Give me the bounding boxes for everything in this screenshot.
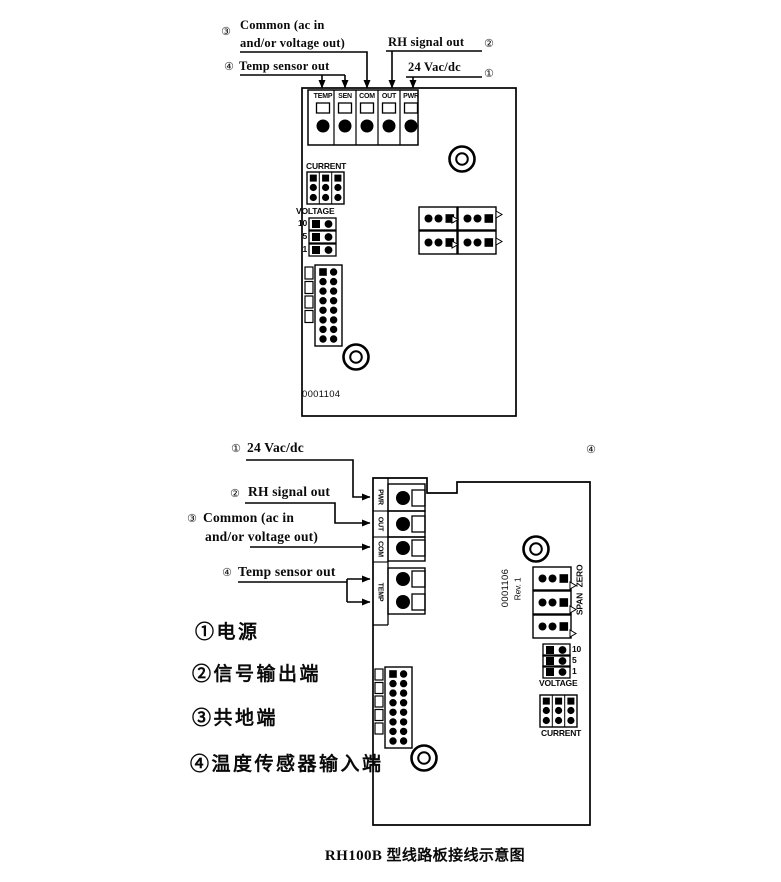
bottom-terminal-out: OUT [376, 517, 383, 531]
top-voltage-tap-1: 1 [293, 245, 307, 254]
bottom-rh-label: RH signal out [248, 485, 330, 499]
bottom-zero-label: ZERO [576, 565, 585, 588]
legend-temp-sensor-in: ④温度传感器输入端 [190, 755, 384, 775]
bottom-terminal-com: COM [376, 541, 383, 557]
bottom-common-number: ③ [187, 513, 197, 525]
top-mounting-hole-1 [450, 147, 475, 172]
circuit-board-graphics [0, 0, 781, 882]
top-rh-number: ② [484, 38, 494, 50]
top-voltage-jumper-5 [309, 231, 336, 243]
bottom-span-zero-connectors [533, 567, 576, 638]
bottom-revision: Rev. 1 [514, 578, 523, 601]
legend-signal-out: ②信号输出端 [192, 665, 321, 685]
bottom-common-label-line2: and/or voltage out) [205, 530, 318, 544]
top-voltage-jumper-10 [309, 218, 336, 230]
bottom-temp-number: ④ [222, 567, 232, 579]
top-terminal-pwr: PWR [400, 93, 422, 100]
bottom-board [373, 478, 590, 825]
bottom-voltage-jumper-1 [543, 666, 570, 678]
bottom-pin-header [385, 667, 412, 748]
bottom-voltage-jumper-5 [543, 655, 570, 667]
bottom-common-label-line1: Common (ac in [203, 511, 294, 525]
top-edge-contacts [305, 267, 313, 323]
bottom-span-label: SPAN [576, 593, 585, 615]
top-terminal-temp: TEMP [312, 93, 334, 100]
bottom-corner-number: ④ [586, 444, 596, 456]
top-terminal-com: COM [356, 93, 378, 100]
legend-power: ①电源 [195, 623, 260, 643]
bottom-voltage-tap-5: 5 [572, 656, 577, 665]
bottom-rh-number: ② [230, 488, 240, 500]
bottom-terminal-temp: TEMP [376, 583, 383, 602]
top-temp-label: Temp sensor out [239, 60, 330, 73]
top-power-label: 24 Vac/dc [408, 61, 461, 74]
bottom-part-number: 0001106 [501, 569, 511, 607]
top-common-number: ③ [221, 26, 231, 38]
bottom-current-label: CURRENT [541, 729, 581, 738]
top-terminal-sen: SEN [334, 93, 356, 100]
bottom-current-jumper-block [540, 695, 577, 727]
top-voltage-tap-5: 5 [293, 232, 307, 241]
bottom-edge-contacts [375, 669, 383, 734]
top-cal-connectors [419, 207, 502, 254]
bottom-mounting-hole-2 [412, 746, 437, 771]
wiring-diagram-page: ③ Common (ac in and/or voltage out) ④ Te… [0, 0, 781, 882]
bottom-power-label: 24 Vac/dc [247, 441, 304, 455]
bottom-voltage-tap-1: 1 [572, 667, 577, 676]
bottom-power-number: ① [231, 443, 241, 455]
top-voltage-label: VOLTAGE [296, 207, 334, 216]
top-terminal-out: OUT [378, 93, 400, 100]
top-common-label-line2: and/or voltage out) [240, 37, 345, 50]
bottom-temp-label: Temp sensor out [238, 565, 336, 579]
top-common-label-line1: Common (ac in [240, 19, 325, 32]
top-temp-number: ④ [224, 61, 234, 73]
top-mounting-hole-2 [344, 345, 369, 370]
top-part-number: 0001104 [302, 390, 340, 400]
legend-common-ground: ③共地端 [192, 709, 278, 729]
diagram-caption: RH100B 型线路板接线示意图 [70, 849, 780, 865]
top-current-jumper-block [307, 172, 344, 204]
top-power-number: ① [484, 68, 494, 80]
top-current-label: CURRENT [306, 162, 346, 171]
top-board [302, 88, 516, 416]
bottom-mounting-hole-1 [524, 537, 549, 562]
bottom-voltage-label: VOLTAGE [539, 679, 577, 688]
bottom-terminal-pwr: PWR [376, 489, 383, 505]
top-voltage-tap-10: 10 [293, 219, 307, 228]
top-rh-label: RH signal out [388, 36, 464, 49]
bottom-voltage-tap-10: 10 [572, 645, 581, 654]
bottom-voltage-jumper-10 [543, 644, 570, 656]
top-pin-header [315, 265, 342, 346]
top-voltage-jumper-1 [309, 244, 336, 256]
